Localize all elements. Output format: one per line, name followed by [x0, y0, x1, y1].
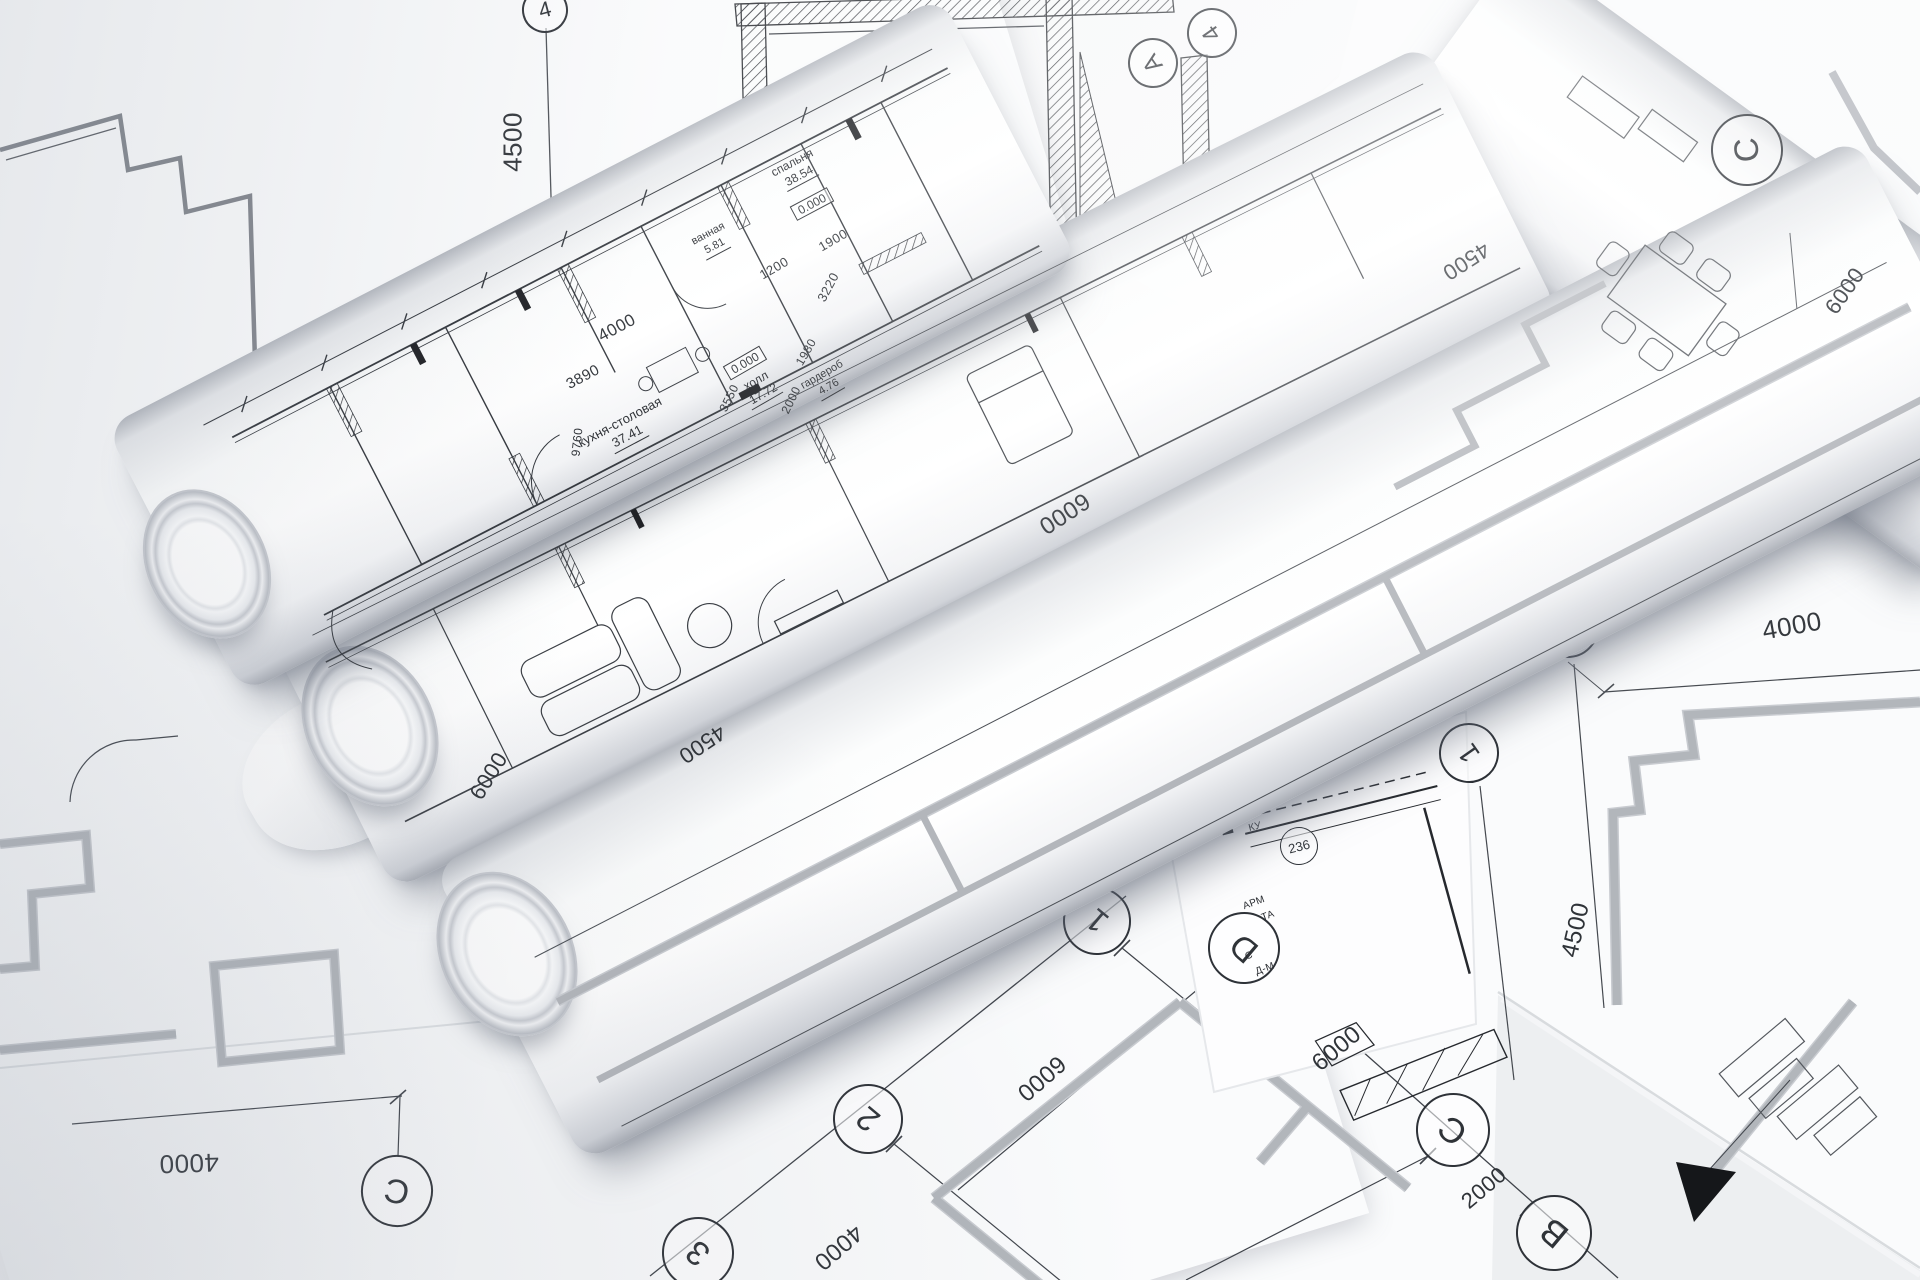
- dimension-label: 6000: [464, 748, 513, 805]
- grid-marker-c-roll: C: [1708, 111, 1786, 189]
- dimension-label: 1980: [793, 336, 819, 368]
- room-label: кухня-столовая 37.41: [575, 393, 673, 466]
- roll-labels: C 4000 3890 1900 1200 3220 1980 3550 200…: [0, 0, 1920, 1280]
- dimension-label: 2000: [778, 384, 803, 416]
- room-label: ванная 5.81: [689, 220, 734, 262]
- dimension-label: 3890: [563, 361, 602, 393]
- dimension-label: 6000: [1033, 486, 1095, 540]
- dimension-label: 1200: [757, 254, 791, 282]
- elevation-badge: 0.000: [790, 187, 835, 221]
- room-label: спальня 38.54: [769, 146, 824, 195]
- dimension-label: 1900: [816, 226, 850, 254]
- dimension-label: 4500: [1438, 236, 1495, 286]
- dimension-label: 6000: [1820, 263, 1871, 320]
- dimension-label: 4500: [674, 719, 731, 769]
- dimension-label: 3220: [814, 270, 842, 304]
- photo-canvas: 4 3 A 4 C 1 1 D 2 3 C B C 236 4500 3490 …: [0, 0, 1920, 1280]
- dimension-label: 4000: [595, 310, 640, 346]
- room-label: гардероб 4.76: [799, 358, 854, 406]
